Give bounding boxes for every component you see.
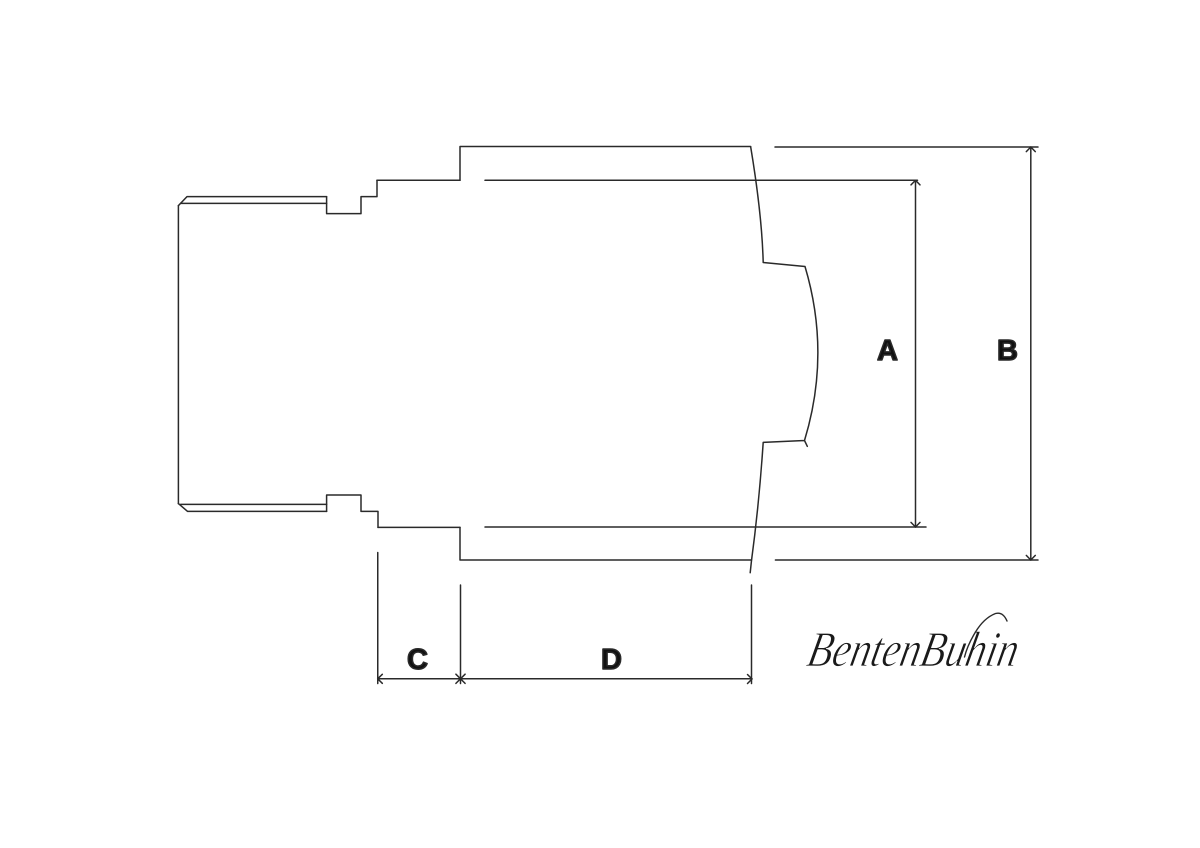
- svg-text:D: D: [601, 644, 622, 676]
- svg-text:A: A: [877, 335, 898, 367]
- svg-text:BentenBuhin: BentenBuhin: [803, 621, 1025, 676]
- svg-text:B: B: [997, 335, 1018, 367]
- svg-text:C: C: [407, 644, 428, 676]
